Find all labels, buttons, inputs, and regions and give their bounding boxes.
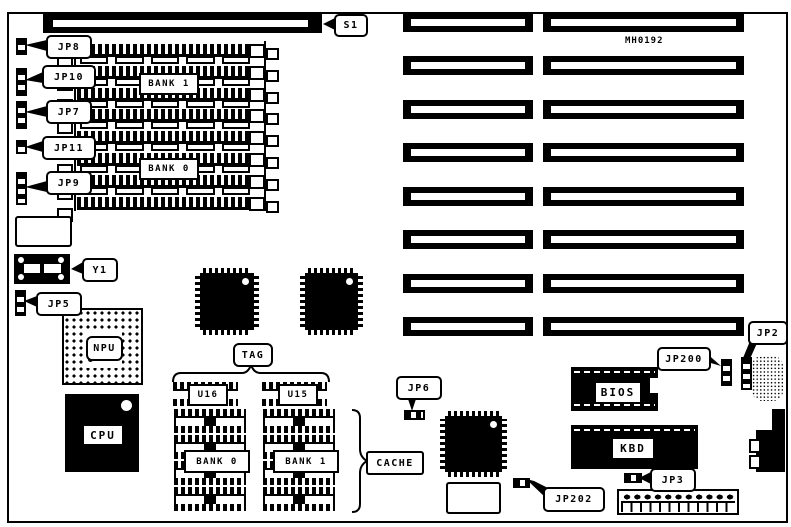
jp6-callout-label: JP6 (396, 376, 442, 400)
jp7-pointer (25, 106, 47, 117)
jp202-callout-label: JP202 (543, 487, 605, 512)
jp7-callout-label: JP7 (46, 100, 92, 124)
tag-brace (173, 365, 329, 382)
simm-bank1-label: BANK 1 (139, 73, 199, 95)
tag-callout-label: TAG (233, 343, 273, 367)
s1-callout-label: S1 (334, 14, 368, 37)
jp3-callout-label: JP3 (650, 468, 696, 492)
jp8-pointer (25, 40, 47, 51)
npu-chip-label: NPU (86, 336, 123, 361)
jp10-pointer (25, 72, 43, 83)
bios-chip-label: BIOS (596, 383, 640, 402)
callout-pointers (0, 0, 791, 527)
motherboard-diagram: S1 BANK 1 BANK 0 JP8 JP10 JP7 JP11 JP9 Y… (0, 0, 791, 527)
kbd-chip-label: KBD (613, 439, 653, 458)
cpu-chip-label: CPU (84, 426, 122, 444)
cache-bank0-label: BANK 0 (184, 450, 250, 473)
part-number: MH0192 (625, 36, 664, 46)
jp8-callout-label: JP8 (46, 35, 92, 59)
cache-brace (352, 410, 367, 512)
jp10-callout-label: JP10 (42, 65, 96, 89)
u16-socket-label: U16 (188, 384, 228, 406)
jp11-pointer (25, 141, 43, 152)
cache-bank1-label: BANK 1 (273, 450, 339, 473)
jp200-callout-label: JP200 (657, 347, 711, 371)
simm-bank0-label: BANK 0 (139, 158, 199, 180)
jp11-callout-label: JP11 (42, 136, 96, 160)
jp9-pointer (25, 181, 47, 192)
jp2-callout-label: JP2 (748, 321, 788, 345)
jp5-callout-label: JP5 (36, 292, 82, 316)
u15-socket-label: U15 (278, 384, 318, 406)
y1-callout-label: Y1 (82, 258, 118, 282)
cache-callout-label: CACHE (366, 451, 424, 475)
jp9-callout-label: JP9 (46, 171, 92, 195)
